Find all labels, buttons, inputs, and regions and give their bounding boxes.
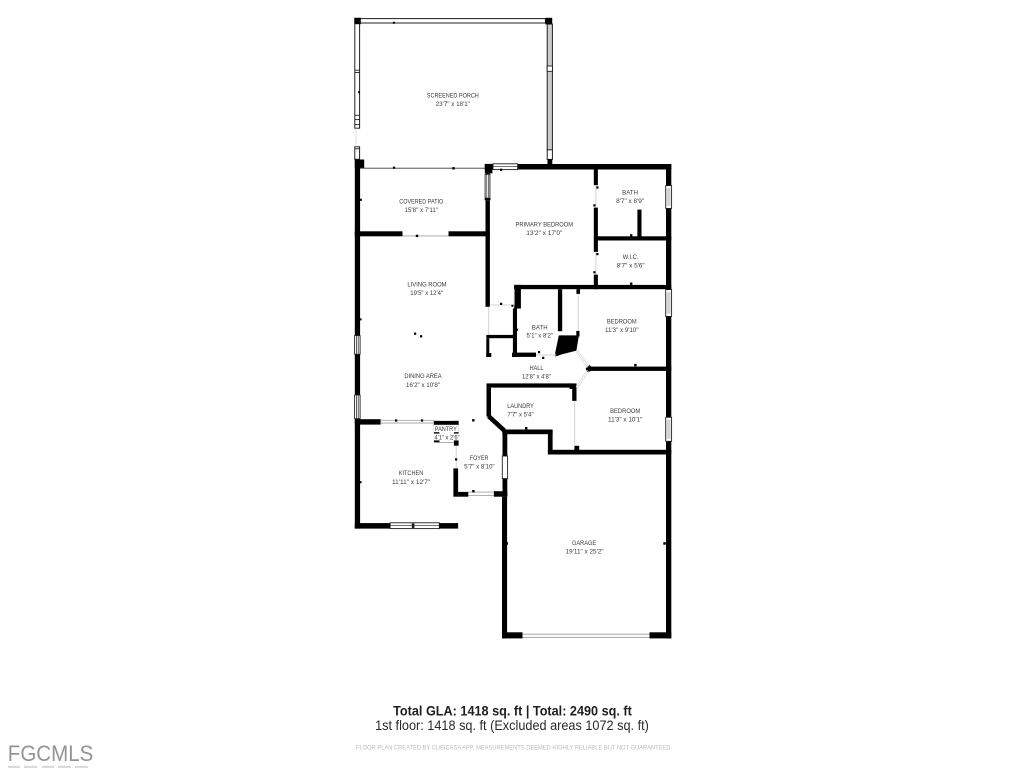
svg-text:5'7" x 8'10": 5'7" x 8'10": [464, 465, 495, 471]
svg-text:11'11" x 12'7": 11'11" x 12'7": [392, 480, 430, 486]
svg-text:13'2" x 17'0": 13'2" x 17'0": [526, 231, 562, 237]
svg-text:11'3" x 10'1": 11'3" x 10'1": [608, 418, 642, 424]
svg-text:LIVING ROOM: LIVING ROOM: [407, 282, 446, 288]
svg-text:BEDROOM: BEDROOM: [610, 409, 640, 415]
svg-text:FGCMLS: FGCMLS: [8, 741, 94, 766]
svg-text:BATH: BATH: [622, 191, 638, 197]
svg-text:DINING AREA: DINING AREA: [404, 374, 441, 380]
svg-text:19'5" x 12'4": 19'5" x 12'4": [410, 291, 443, 297]
svg-text:12'8" x 4'8": 12'8" x 4'8": [522, 375, 551, 381]
svg-text:SCREENED PORCH: SCREENED PORCH: [427, 94, 479, 100]
svg-text:BEDROOM: BEDROOM: [607, 319, 637, 325]
svg-text:KITCHEN: KITCHEN: [399, 471, 424, 477]
svg-text:GARAGE: GARAGE: [572, 541, 596, 547]
svg-text:BATH: BATH: [532, 325, 548, 331]
svg-text:1st floor: 1418 sq. ft (Exclud: 1st floor: 1418 sq. ft (Excluded areas 1…: [375, 718, 649, 733]
svg-text:8'7" x 8'9": 8'7" x 8'9": [616, 199, 644, 205]
svg-text:15'8" x 7'11": 15'8" x 7'11": [405, 208, 438, 214]
svg-text:11'3" x 9'10": 11'3" x 9'10": [605, 328, 639, 334]
svg-text:FOYER: FOYER: [470, 456, 489, 462]
svg-text:COVERED PATIO: COVERED PATIO: [399, 199, 443, 205]
svg-text:23'7" x 18'1": 23'7" x 18'1": [436, 102, 470, 108]
svg-text:4'1" x 2'6": 4'1" x 2'6": [434, 435, 459, 441]
svg-text:PRIMARY BEDROOM: PRIMARY BEDROOM: [516, 223, 574, 229]
svg-text:HALL: HALL: [529, 366, 544, 372]
svg-text:16'2" x 10'8": 16'2" x 10'8": [406, 383, 440, 389]
svg-text:PANTRY: PANTRY: [435, 427, 457, 433]
svg-text:FLOOR PLAN CREATED BY CUBICASA: FLOOR PLAN CREATED BY CUBICASA APP. MEAS…: [356, 744, 672, 751]
svg-text:8'7" x 5'6": 8'7" x 5'6": [617, 263, 645, 269]
svg-text:7'7" x 5'4": 7'7" x 5'4": [507, 413, 533, 419]
svg-text:W.I.C.: W.I.C.: [623, 255, 639, 261]
svg-text:5'1" x 8'2": 5'1" x 8'2": [527, 334, 554, 340]
svg-text:LAUNDRY: LAUNDRY: [507, 404, 534, 410]
svg-text:19'11" x 25'2": 19'11" x 25'2": [566, 550, 604, 556]
